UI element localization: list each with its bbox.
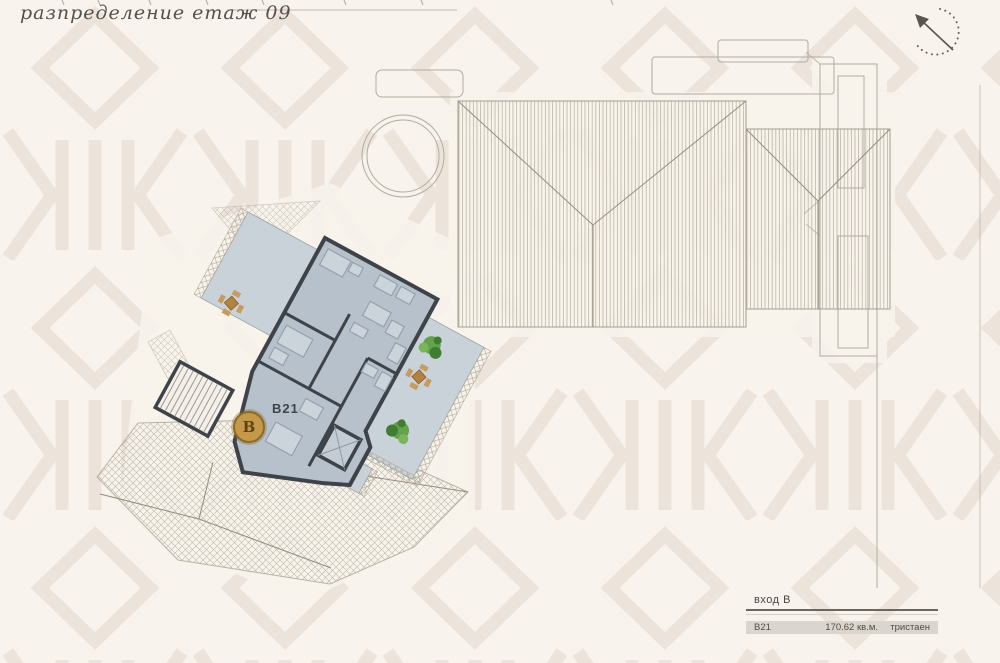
page-title: разпределение етаж 09 [20,2,292,24]
floorplan-page: разпределение етаж 09 В21 В вход В В21 1… [0,0,1000,663]
roof-main-hatched [458,101,890,327]
legend: вход В В21 170.62 кв.м. тристаен [746,594,938,634]
entrance-b-marker: В [233,411,265,443]
floorplan-drawing [0,0,1000,663]
legend-entrance-heading: вход В [746,594,938,606]
legend-rule [746,609,938,615]
legend-row: В21 170.62 кв.м. тристаен [746,621,938,634]
unit-label: В21 [272,401,299,416]
legend-unit-type: тристаен [878,622,930,633]
legend-unit-area: 170.62 кв.м. [806,622,878,633]
legend-unit-id: В21 [754,622,806,633]
